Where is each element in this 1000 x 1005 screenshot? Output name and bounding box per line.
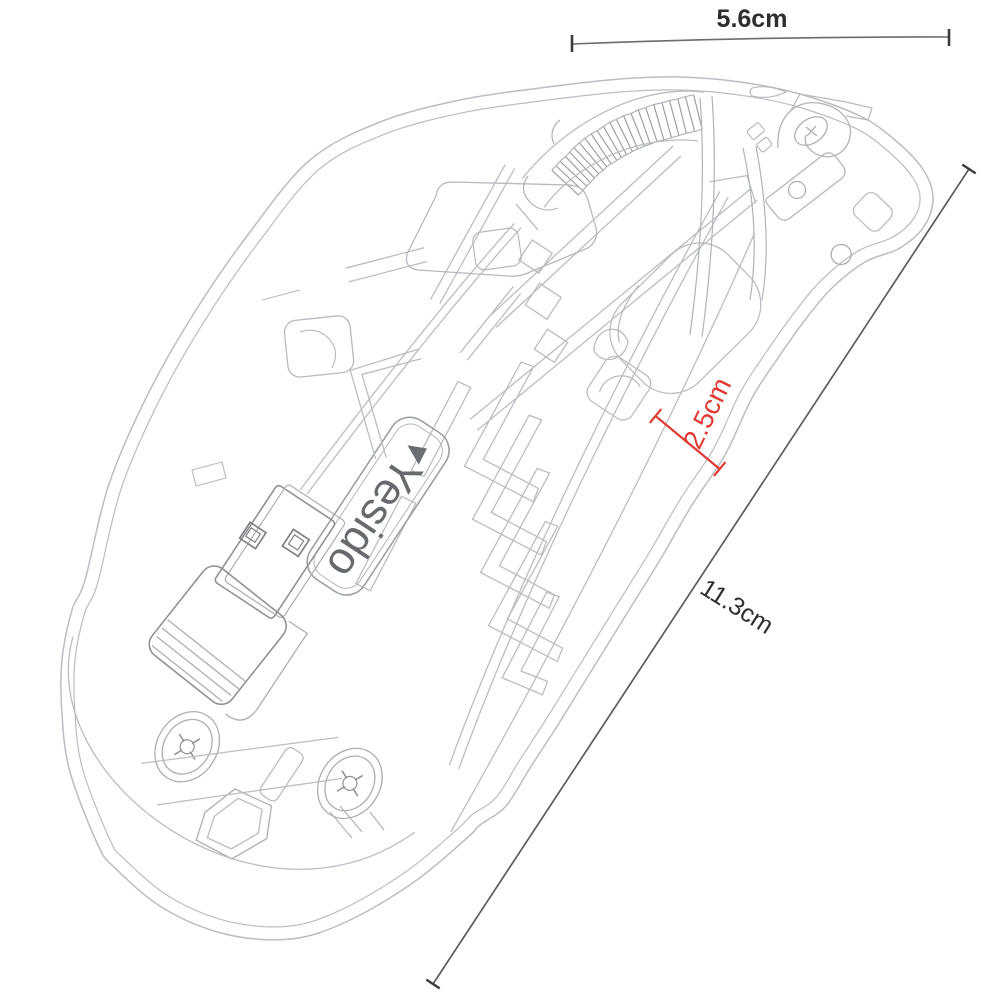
- svg-text:5.6cm: 5.6cm: [717, 5, 788, 33]
